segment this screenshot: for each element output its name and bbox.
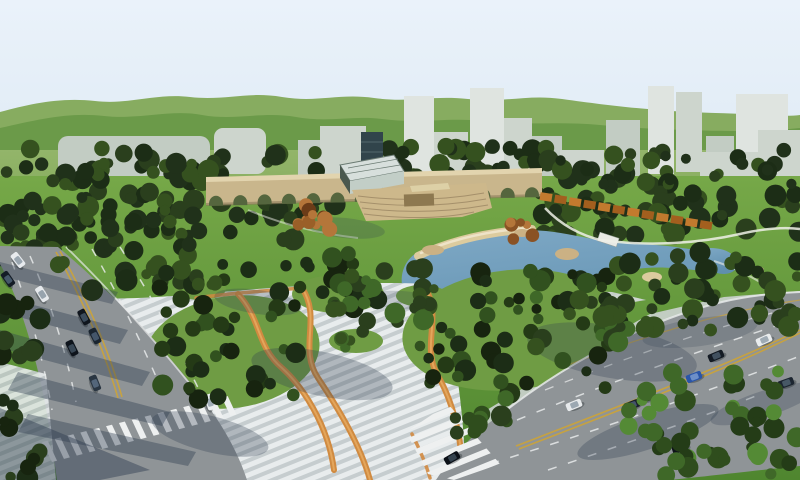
tree-canopy [733,275,751,293]
tree-canopy [412,258,433,279]
tree-canopy [217,259,228,270]
tree-canopy [223,225,238,240]
tree-canopy [554,352,571,369]
tree-canopy [286,343,306,363]
tree-canopy [154,341,170,357]
tree-canopy [764,280,786,302]
tree-canopy [450,412,461,423]
tree-canopy [718,453,730,465]
tree-canopy [765,185,787,207]
rendering-viewport [0,0,800,480]
tree-canopy [604,146,623,165]
rock [422,245,444,255]
tree-canopy [270,282,290,302]
tree-canopy [665,174,676,185]
tree-canopy [563,308,576,321]
tree-canopy [152,375,173,396]
tree-canopy [423,353,434,364]
tree-canopy [28,214,40,226]
tree-canopy [491,406,512,427]
tree-canopy [497,332,513,348]
tree-canopy [598,179,609,190]
tree-canopy [766,404,782,420]
tree-canopy [678,319,689,330]
tree-canopy [308,210,317,219]
tree-canopy [81,279,103,301]
tree-canopy [80,212,93,225]
tree-canopy [396,146,409,159]
tree-canopy [696,444,711,459]
tree-canopy [433,343,444,354]
tree-canopy [13,224,30,241]
tree-canopy [647,303,658,314]
tree-canopy [736,219,757,240]
tree-canopy [337,281,352,296]
tree-canopy [57,227,76,246]
tree-canopy [183,382,195,394]
tree-canopy [450,426,464,440]
tree-canopy [667,452,685,470]
tree-canopy [39,223,58,242]
tree-canopy [265,145,286,166]
tree-canopy [358,297,371,310]
tree-canopy [727,307,748,328]
tree-canopy [513,305,523,315]
tree-canopy [135,144,153,162]
tree-canopy [493,353,514,374]
tree-canopy [751,305,768,322]
tree-canopy [660,151,670,161]
tree-canopy [161,306,172,317]
tree-canopy [309,146,322,159]
tree-canopy [724,365,744,385]
tree-canopy [626,226,644,244]
tree-canopy [77,192,88,203]
tree-canopy [17,210,29,222]
tree-canopy [21,140,40,159]
tree-canopy [415,341,426,352]
tree-canopy [750,449,766,465]
tree-canopy [210,388,227,405]
tree-canopy [35,157,48,170]
tree-canopy [684,184,702,202]
tree-canopy [470,293,486,309]
tree-canopy [57,206,76,225]
tree-canopy [730,417,749,436]
tree-canopy [438,138,455,155]
tree-canopy [523,264,538,279]
tree-canopy [581,366,591,376]
tree-canopy [576,316,590,330]
tree-canopy [663,363,682,382]
tree-canopy [484,291,497,304]
tree-canopy [213,317,229,333]
tree-canopy [1,166,13,178]
tree-canopy [503,141,518,156]
tree-canopy [240,261,257,278]
tree-canopy [498,390,514,406]
tree-canopy [191,223,208,240]
tree-canopy [146,213,162,229]
park-aerial-rendering [0,0,800,480]
tree-canopy [730,252,742,264]
tree-canopy [140,183,159,202]
tree-canopy [608,332,628,352]
amphitheater-stage [404,193,434,206]
tree-canopy [193,295,213,315]
tree-canopy [576,273,596,293]
tree-canopy [506,218,516,228]
tree-canopy [786,179,796,189]
tree-canopy [193,361,210,378]
tree-canopy [671,433,690,452]
tree-canopy [670,248,685,263]
tree-canopy [465,142,485,162]
tree-canopy [361,275,371,285]
tree-canopy [580,163,594,177]
tree-canopy [644,423,662,441]
tree-canopy [493,374,508,389]
tree-canopy [736,158,748,170]
tree-canopy [322,247,342,267]
tree-canopy [687,315,699,327]
tree-canopy [474,321,491,338]
tree-canopy [264,378,276,390]
tree-canopy [468,415,488,435]
tree-canopy [344,269,359,284]
tree-canopy [385,303,406,324]
rock [555,248,579,260]
tree-canopy [304,261,315,272]
tree-canopy [173,291,190,308]
tree-canopy [289,300,301,312]
tree-canopy [437,357,454,374]
tree-canopy [621,158,635,172]
tree-canopy [23,192,41,210]
tree-canopy [504,297,515,308]
tree-canopy [356,325,369,338]
tree-canopy [325,302,341,318]
tree-canopy [452,371,464,383]
tree-canopy [101,219,119,237]
tree-canopy [526,228,540,242]
tree-canopy [616,276,632,292]
tree-canopy [716,186,736,206]
tree-canopy [376,262,394,280]
tree-canopy [620,417,638,435]
tree-canopy [22,341,43,362]
tree-canopy [709,171,720,182]
tree-canopy [759,208,780,229]
tree-canopy [532,304,542,314]
tree-canopy [223,343,240,360]
tree-canopy [684,278,705,299]
tree-canopy [84,231,97,244]
tree-canopy [765,468,776,479]
tree-canopy [429,284,438,293]
tree-canopy [704,324,717,337]
tree-canopy [668,263,688,283]
tree-canopy [59,178,71,190]
tree-canopy [751,417,762,428]
tree-canopy [653,288,670,305]
tree-canopy [141,269,151,279]
tree-canopy [186,159,197,170]
tree-canopy [555,155,565,165]
tree-canopy [445,328,456,339]
tree-canopy [124,213,142,231]
tree-canopy [781,455,797,471]
tree-canopy [597,282,607,292]
tree-canopy [229,312,240,323]
tree-canopy [158,265,174,281]
tree-canopy [20,459,36,475]
tree-canopy [764,417,785,438]
tree-canopy [94,141,109,156]
tree-canopy [519,376,534,391]
tree-canopy [160,205,171,216]
tree-canopy [152,280,168,296]
tree-canopy [322,222,337,237]
tree-canopy [163,323,178,338]
tree-canopy [19,160,33,174]
tree-canopy [77,163,94,180]
tree-canopy [116,269,138,291]
tree-canopy [185,321,201,337]
tree-canopy [335,332,347,344]
tree-canopy [772,366,784,378]
tree-canopy [480,275,492,287]
tree-canopy [287,389,300,402]
tree-canopy [184,207,202,225]
tree-canopy [425,369,441,385]
tree-canopy [276,232,291,247]
tree-canopy [760,378,773,391]
tree-canopy [171,260,191,280]
tree-canopy [508,233,520,245]
tree-canopy [182,237,197,252]
tree-canopy [341,246,356,261]
tree-canopy [637,173,655,191]
tree-canopy [527,154,540,167]
tree-canopy [46,174,59,187]
tree-canopy [570,290,589,309]
tree-canopy [777,143,792,158]
tree-canopy [681,154,691,164]
tree-canopy [479,307,495,323]
tree-canopy [643,152,661,170]
tree-canopy [589,346,607,364]
tree-canopy [567,269,577,279]
tree-canopy [57,256,70,269]
tree-canopy [125,193,137,205]
tree-canopy [485,139,500,154]
tree-canopy [30,308,51,329]
tree-canopy [645,252,658,265]
tree-canopy [192,278,205,291]
tree-canopy [413,309,434,330]
tree-canopy [513,293,525,305]
tree-canopy [762,164,773,175]
tree-canopy [208,276,222,290]
tree-canopy [690,242,711,263]
tree-canopy [124,241,143,260]
tree-canopy [413,296,427,310]
tree-canopy [717,210,727,220]
tree-canopy [246,380,263,397]
tree-canopy [527,338,544,355]
tree-canopy [593,306,614,327]
tree-canopy [642,406,657,421]
tree-canopy [619,253,641,275]
tree-canopy [294,281,306,293]
tree-canopy [316,285,330,299]
tree-canopy [229,207,245,223]
tree-canopy [280,260,291,271]
tree-canopy [115,145,133,163]
tree-canopy [599,381,612,394]
tree-canopy [166,153,187,174]
tree-canopy [530,291,543,304]
tree-canopy [266,311,278,323]
tree-canopy [621,403,637,419]
tree-canopy [7,400,19,412]
tree-canopy [98,158,110,170]
tree-canopy [163,215,176,228]
tree-canopy [147,166,160,179]
tree-canopy [533,314,543,324]
tree-canopy [636,319,654,337]
